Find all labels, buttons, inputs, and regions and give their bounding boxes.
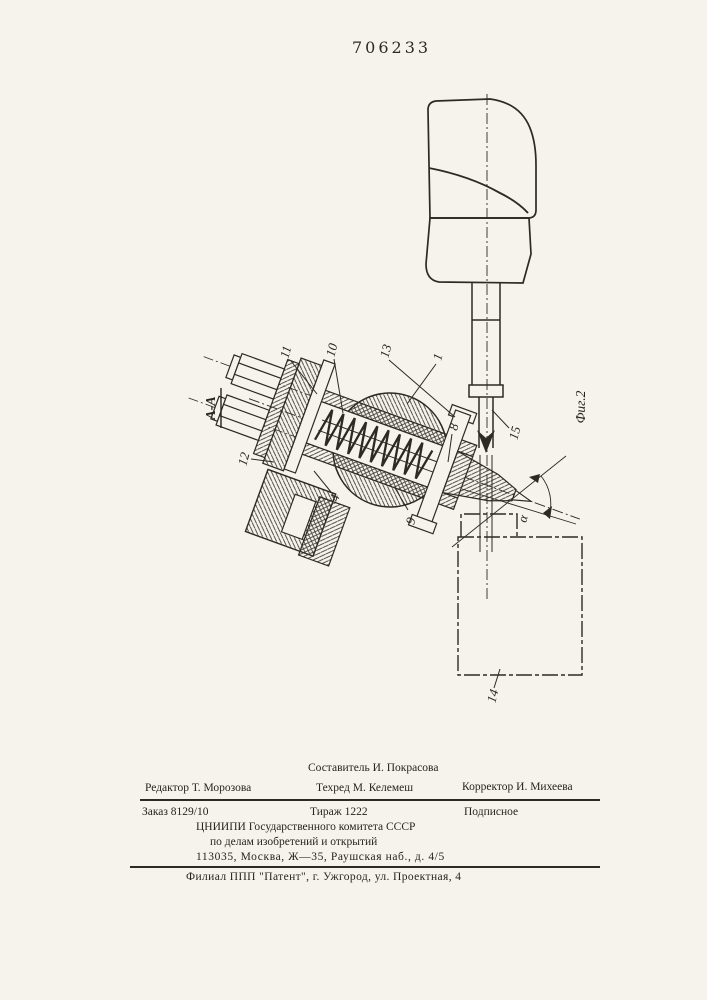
colophon-print-run: Тираж 1222 [310,806,368,818]
colophon-rule-top [140,799,600,801]
colophon-compositor: Составитель И. Покрасова [308,762,438,774]
colophon-techred: Техред М. Келемеш [316,782,413,794]
colophon-order: Заказ 8129/10 [142,806,209,818]
part-label-12: 12 [235,450,253,467]
handle-grip [426,99,536,283]
part-label-15: 15 [506,424,524,441]
colophon-corrector: Корректор И. Михеева [462,781,573,793]
colophon-org-line1: ЦНИИПИ Государственного комитета СССР [196,821,415,833]
tool-tip [512,490,532,506]
part-label-10: 10 [323,341,341,358]
part-label-13: 13 [377,342,395,359]
colophon-rule-bottom [130,866,600,868]
figure-caption: Фиг.2 [573,390,588,423]
colophon-address: 113035, Москва, Ж—35, Раушская наб., д. … [196,851,445,863]
part-label-14: 14 [484,687,502,704]
section-label: А-А [204,396,219,420]
colophon-subscription: Подписное [464,806,518,818]
part-label-1: 1 [429,352,445,362]
colophon-branch: Филиал ППП "Патент", г. Ужгород, ул. Про… [186,871,461,883]
patent-page: 706233 [0,0,707,1000]
workpiece-box [458,514,582,675]
colophon-editor: Редактор Т. Морозова [145,782,251,794]
part-label-11: 11 [277,344,295,360]
colophon-org-line2: по делам изобретений и открытий [210,836,377,848]
figure-drawing: α 11 10 13 1 8 15 12 4 9 14 А-А Фиг.2 [0,0,707,755]
